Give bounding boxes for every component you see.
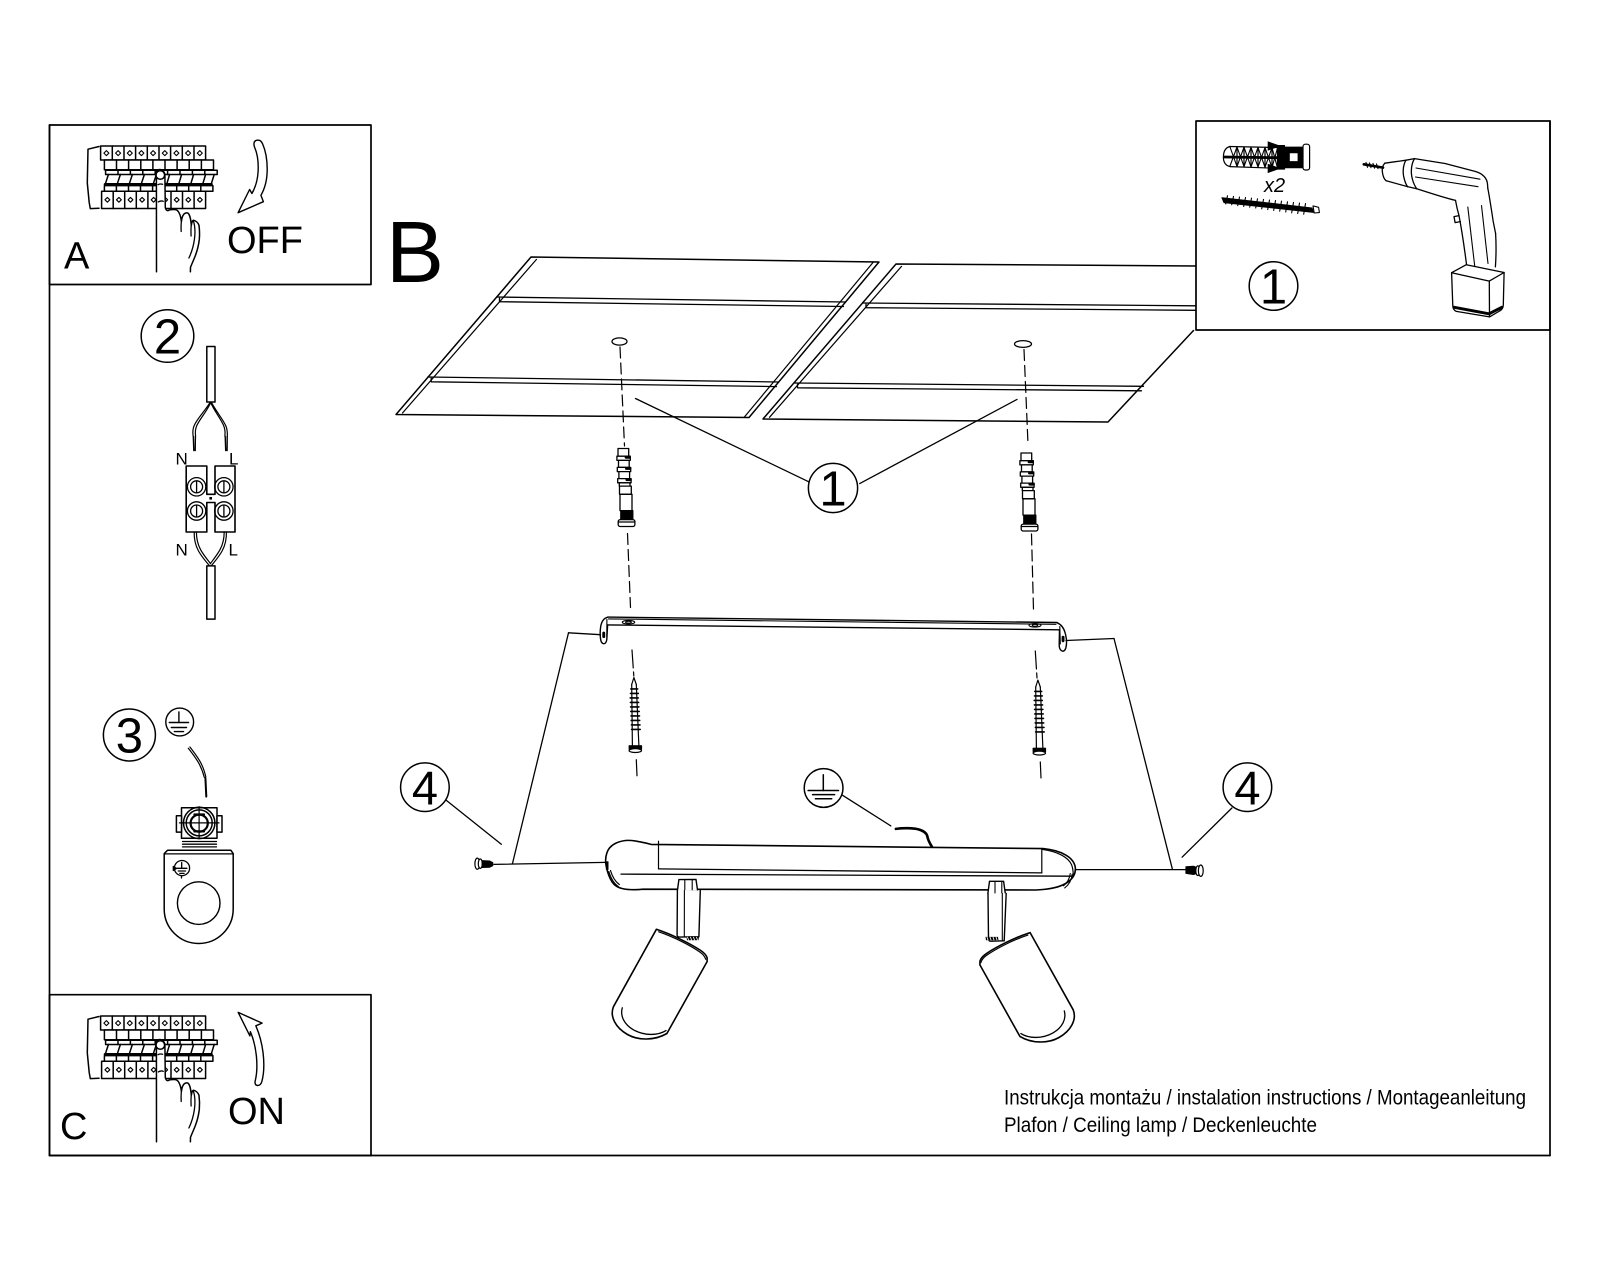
svg-text:L: L xyxy=(229,541,238,560)
svg-text:4: 4 xyxy=(1234,762,1260,815)
svg-text:ON: ON xyxy=(228,1091,285,1133)
svg-text:x2: x2 xyxy=(1263,175,1285,197)
svg-text:C: C xyxy=(60,1106,87,1148)
svg-text:OFF: OFF xyxy=(227,220,303,262)
svg-text:3: 3 xyxy=(116,710,143,764)
svg-text:1: 1 xyxy=(819,463,846,517)
svg-text:B: B xyxy=(386,204,444,301)
svg-text:4: 4 xyxy=(412,762,438,815)
svg-text:Instrukcja montażu / instalati: Instrukcja montażu / instalation instruc… xyxy=(1004,1086,1526,1110)
svg-text:1: 1 xyxy=(1260,261,1287,315)
svg-text:A: A xyxy=(64,236,90,278)
svg-text:Plafon / Ceiling lamp / Decken: Plafon / Ceiling lamp / Deckenleuchte xyxy=(1004,1113,1317,1137)
svg-text:N: N xyxy=(176,541,188,560)
svg-text:2: 2 xyxy=(154,311,181,365)
